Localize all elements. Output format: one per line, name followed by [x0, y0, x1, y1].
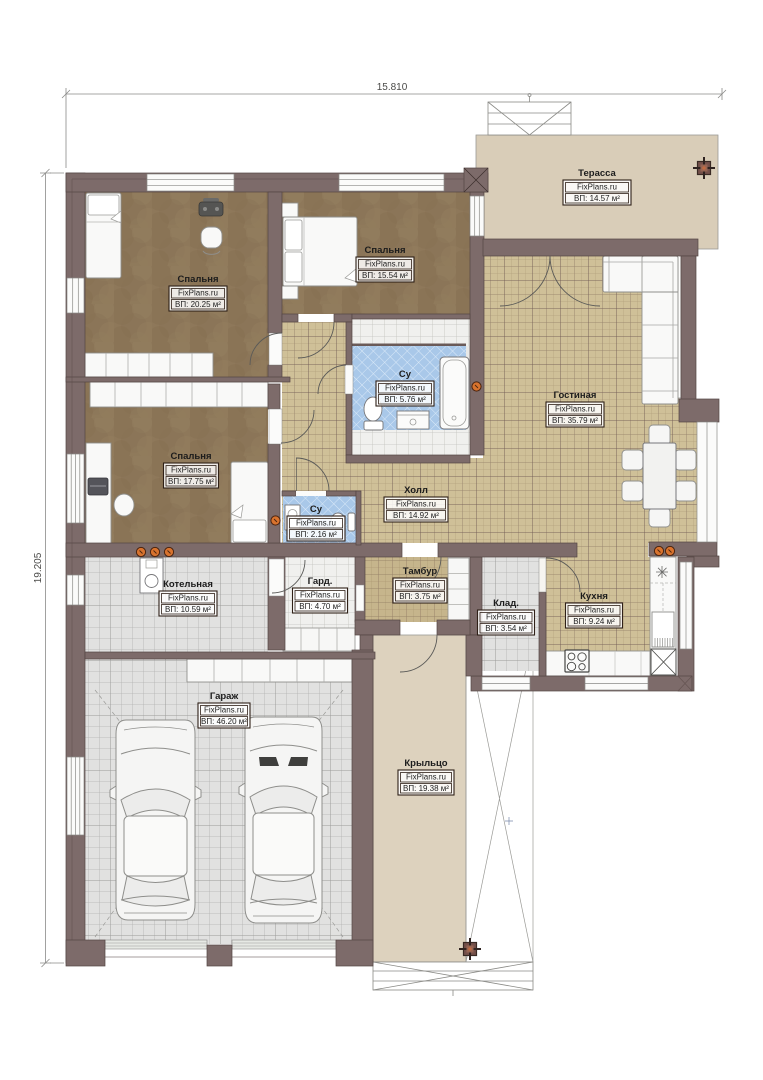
svg-text:FixPlans.ru: FixPlans.ru: [168, 594, 208, 603]
svg-text:Гараж: Гараж: [210, 691, 239, 702]
svg-text:FixPlans.ru: FixPlans.ru: [406, 773, 446, 782]
svg-text:Су: Су: [399, 369, 412, 380]
svg-text:19.205: 19.205: [33, 552, 44, 583]
svg-text:Су: Су: [310, 504, 323, 515]
svg-text:FixPlans.ru: FixPlans.ru: [296, 519, 336, 528]
svg-text:FixPlans.ru: FixPlans.ru: [171, 466, 211, 475]
svg-text:Клад.: Клад.: [493, 598, 519, 609]
svg-text:FixPlans.ru: FixPlans.ru: [486, 613, 526, 622]
svg-text:Тамбур: Тамбур: [403, 566, 438, 577]
svg-text:FixPlans.ru: FixPlans.ru: [385, 384, 425, 393]
svg-text:FixPlans.ru: FixPlans.ru: [178, 289, 218, 298]
svg-text:ВП: 14.92 м²: ВП: 14.92 м²: [393, 511, 439, 520]
svg-text:Холл: Холл: [404, 485, 428, 496]
svg-text:ВП: 14.57 м²: ВП: 14.57 м²: [574, 194, 620, 203]
svg-text:ВП: 20.25 м²: ВП: 20.25 м²: [175, 300, 221, 309]
svg-text:Гостиная: Гостиная: [554, 390, 597, 401]
svg-text:ВП: 19.38 м²: ВП: 19.38 м²: [403, 784, 449, 793]
svg-text:ВП: 10.59 м²: ВП: 10.59 м²: [165, 605, 211, 614]
svg-text:ВП: 46.20 м²: ВП: 46.20 м²: [201, 717, 247, 726]
svg-text:ВП: 15.54 м²: ВП: 15.54 м²: [362, 271, 408, 280]
svg-text:FixPlans.ru: FixPlans.ru: [396, 500, 436, 509]
svg-text:FixPlans.ru: FixPlans.ru: [577, 183, 617, 192]
svg-text:ВП: 35.79 м²: ВП: 35.79 м²: [552, 416, 598, 425]
svg-text:ВП: 9.24 м²: ВП: 9.24 м²: [573, 617, 615, 626]
svg-text:FixPlans.ru: FixPlans.ru: [574, 606, 614, 615]
svg-text:Гард.: Гард.: [308, 576, 333, 587]
svg-text:ВП: 5.76 м²: ВП: 5.76 м²: [384, 395, 426, 404]
svg-text:Терасса: Терасса: [578, 168, 616, 179]
svg-text:Котельная: Котельная: [163, 579, 213, 590]
svg-text:Спальня: Спальня: [177, 274, 218, 285]
svg-text:Спальня: Спальня: [364, 245, 405, 256]
svg-text:FixPlans.ru: FixPlans.ru: [365, 260, 405, 269]
svg-text:FixPlans.ru: FixPlans.ru: [204, 706, 244, 715]
svg-text:FixPlans.ru: FixPlans.ru: [555, 405, 595, 414]
svg-text:Спальня: Спальня: [170, 451, 211, 462]
svg-text:FixPlans.ru: FixPlans.ru: [400, 581, 440, 590]
svg-text:ВП: 4.70 м²: ВП: 4.70 м²: [299, 602, 341, 611]
svg-text:ВП: 17.75 м²: ВП: 17.75 м²: [168, 477, 214, 486]
svg-text:15.810: 15.810: [377, 82, 408, 93]
svg-text:FixPlans.ru: FixPlans.ru: [300, 591, 340, 600]
svg-text:ВП: 3.75 м²: ВП: 3.75 м²: [399, 592, 441, 601]
svg-text:ВП: 3.54 м²: ВП: 3.54 м²: [485, 624, 527, 633]
svg-text:Кухня: Кухня: [580, 591, 608, 602]
svg-text:ВП: 2.16 м²: ВП: 2.16 м²: [295, 530, 337, 539]
svg-text:Крыльцо: Крыльцо: [404, 758, 447, 769]
